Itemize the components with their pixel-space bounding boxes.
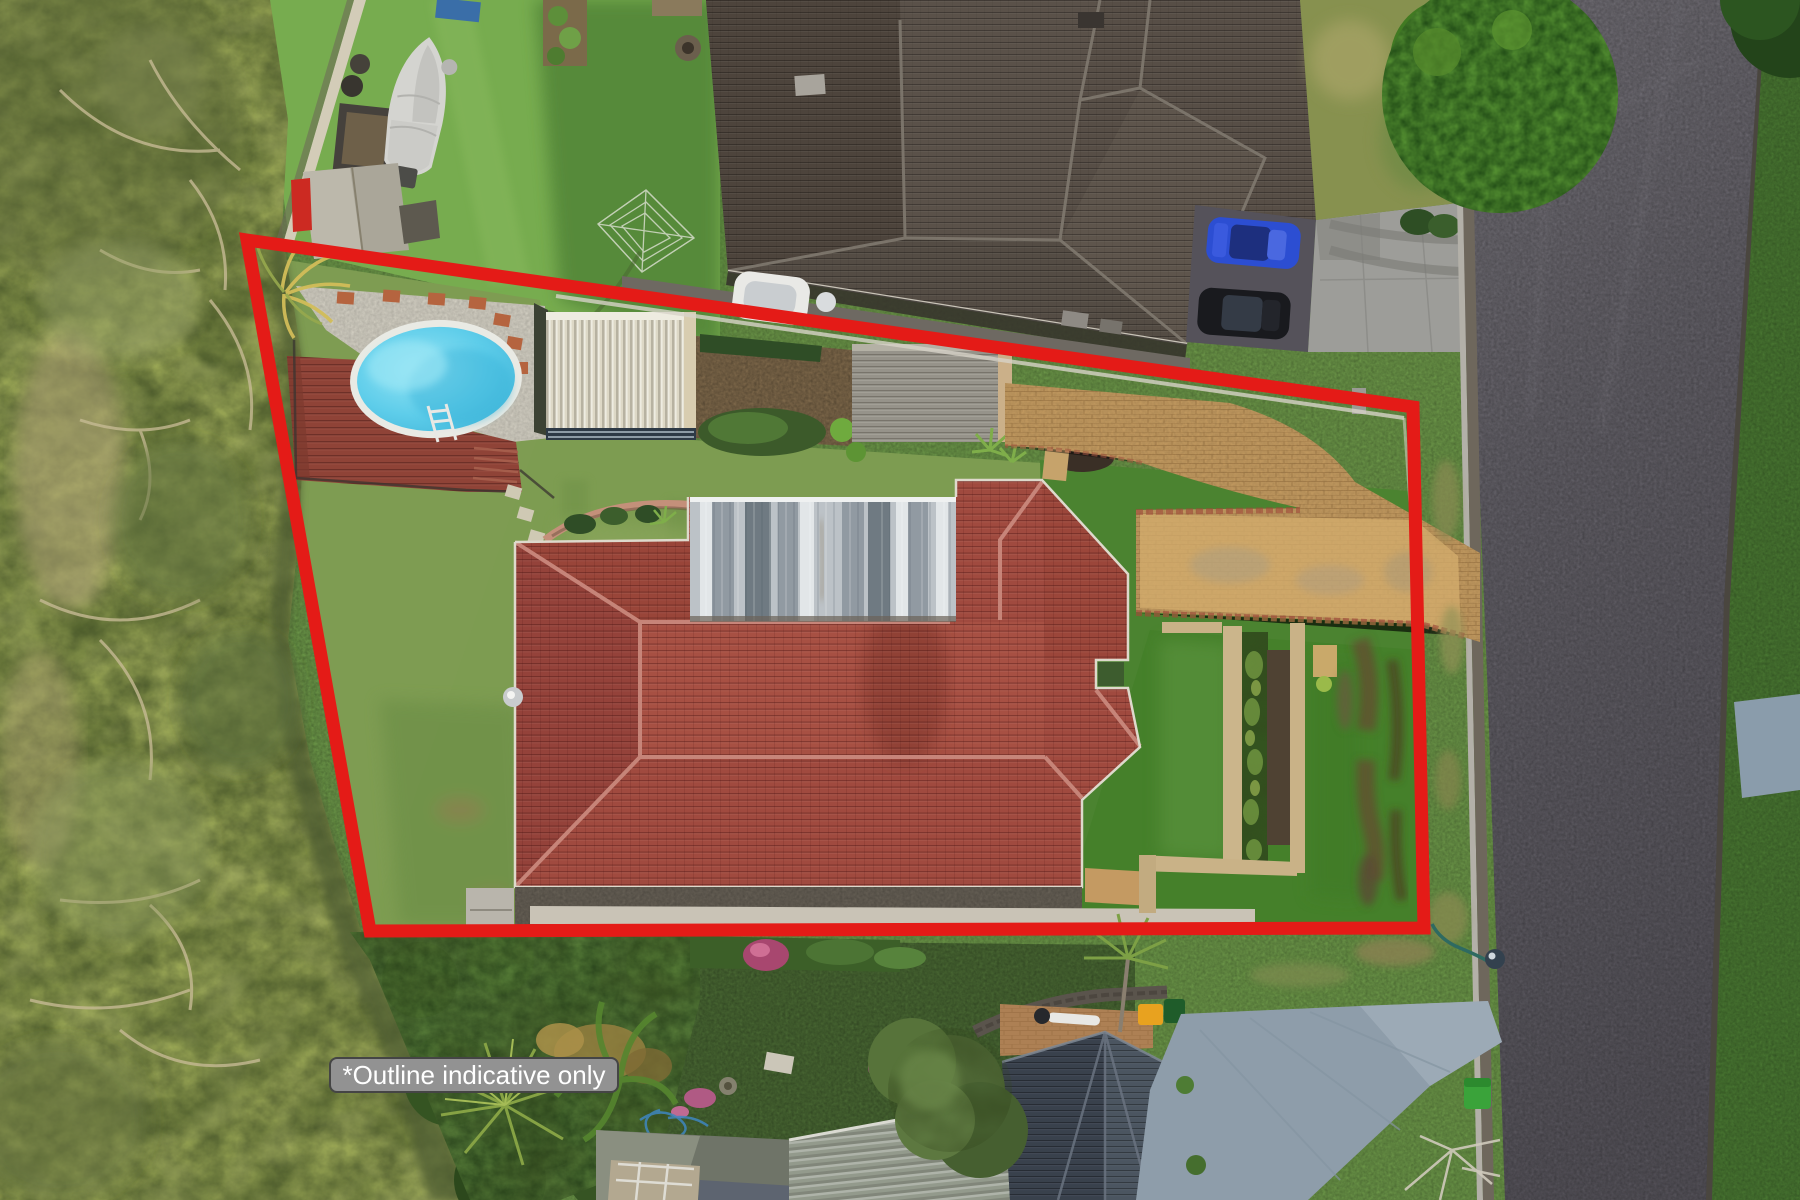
- svg-text:*Outline indicative only: *Outline indicative only: [342, 1060, 605, 1090]
